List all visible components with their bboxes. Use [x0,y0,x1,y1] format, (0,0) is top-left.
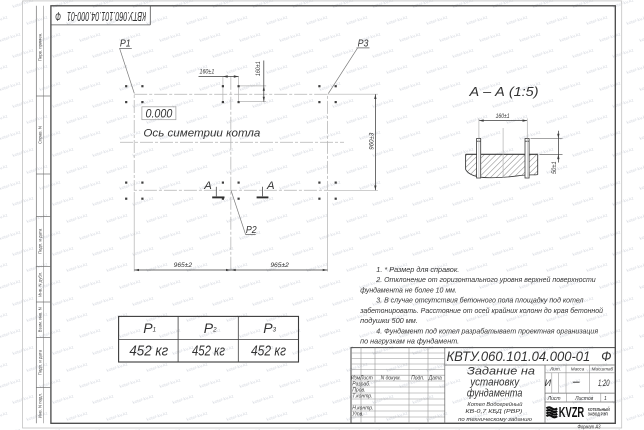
svg-text:160±1: 160±1 [200,69,215,76]
svg-text:Масса: Масса [571,367,585,372]
svg-text:0.000: 0.000 [146,107,173,121]
svg-text:Лист: Лист [359,375,373,381]
svg-text:Лит.: Лит. [549,367,561,372]
svg-text:Утв.: Утв. [352,412,363,418]
svg-text:Инв. N подл.: Инв. N подл. [37,393,42,418]
svg-text:452 кг: 452 кг [251,343,286,360]
svg-text:А: А [203,180,212,192]
svg-text:452 кг: 452 кг [192,343,226,360]
svg-text:965±2: 965±2 [270,262,289,269]
svg-text:N докум.: N докум. [381,375,401,381]
svg-text:А: А [266,180,275,192]
svg-text:фундамента не более 10 мм.: фундамента не более 10 мм. [360,285,457,294]
svg-text:3. В случае отсутствия бетонно: 3. В случае отсутствия бетонного пола пл… [376,296,583,305]
svg-text:КВ-0,7 КБД (РВР): КВ-0,7 КБД (РВР) [465,409,522,415]
svg-text:фундамента: фундамента [467,388,523,400]
svg-text:160±1: 160±1 [496,113,510,120]
svg-text:1. * Размер для справок.: 1. * Размер для справок. [376,265,459,274]
svg-text:по нагрузкам на фундамент.: по нагрузкам на фундамент. [360,337,459,346]
svg-text:160±1: 160±1 [255,61,262,76]
svg-text:KVZR: KVZR [559,405,585,421]
svg-text:Лист: Лист [547,396,561,402]
svg-text:Инв. N дубл.: Инв. N дубл. [37,272,42,297]
svg-text:2: 2 [212,326,217,333]
svg-text:Т.контр.: Т.контр. [352,394,372,400]
svg-text:Подп.: Подп. [411,375,424,381]
svg-text:P1: P1 [120,38,131,49]
svg-text:КВТУ.060.101.04.000-01 Ф: КВТУ.060.101.04.000-01 Ф [447,349,612,365]
svg-text:Подп. и дата: Подп. и дата [37,349,42,375]
svg-text:Справ. N: Справ. N [37,126,42,144]
svg-text:Формат А3: Формат А3 [578,424,601,430]
svg-text:452 кг: 452 кг [129,343,168,360]
svg-text:ЗАВОД РЭП: ЗАВОД РЭП [588,412,608,417]
svg-text:4. Фундамент под котел разраба: 4. Фундамент под котел разрабатывает про… [376,326,598,335]
svg-text:Масштаб: Масштаб [592,367,614,372]
svg-text:3: 3 [273,326,277,333]
svg-text:подушки 500 мм.: подушки 500 мм. [360,316,418,325]
svg-text:965±2: 965±2 [174,262,193,269]
svg-text:50±1: 50±1 [551,161,558,174]
svg-text:960±3: 960±3 [369,132,376,149]
svg-text:Котел Водогрейный: Котел Водогрейный [467,401,522,408]
svg-text:Перв. примен.: Перв. примен. [37,33,42,62]
svg-text:1: 1 [604,396,607,402]
svg-text:по техническому заданию: по техническому заданию [458,417,533,423]
svg-text:И: И [545,378,552,388]
svg-text:2. Отклонение от горизонтально: 2. Отклонение от горизонтального уровня … [375,275,595,284]
svg-text:Ось симетрии котла: Ось симетрии котла [143,128,260,140]
svg-text:КВТУ.060.101.04.000-01 Ф: КВТУ.060.101.04.000-01 Ф [55,9,146,24]
svg-text:Подп. и дата: Подп. и дата [37,228,42,254]
svg-text:Дата: Дата [428,375,442,381]
svg-text:забетонировать. Расстояние от: забетонировать. Расстояние от осей крайн… [359,306,603,315]
svg-text:1:20: 1:20 [598,378,610,388]
svg-text:Взам. инв. N: Взам. инв. N [37,307,42,332]
svg-text:А – А (1:5): А – А (1:5) [468,85,538,99]
svg-text:1: 1 [153,326,156,333]
svg-text:Листов: Листов [574,396,594,402]
